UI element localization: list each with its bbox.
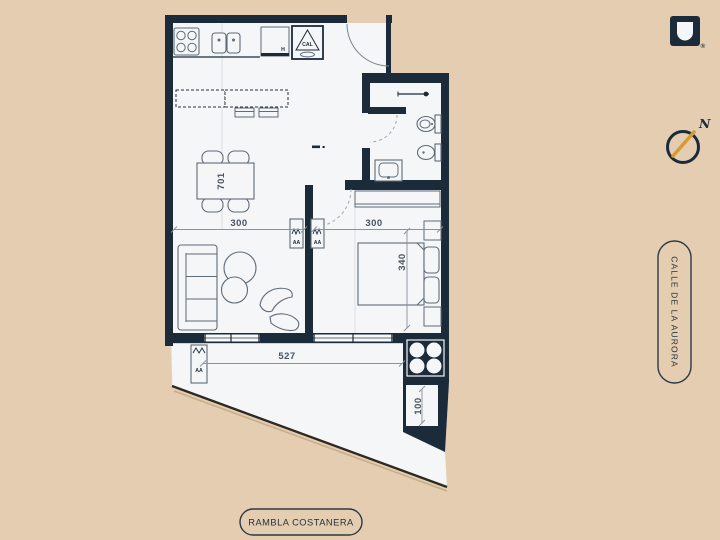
north-label: N bbox=[698, 116, 711, 131]
wall-laundry-top bbox=[362, 73, 449, 83]
living-window bbox=[204, 335, 260, 342]
terrace-depth-dimension: 100 bbox=[406, 385, 438, 426]
water-heater-icon: CAL bbox=[292, 26, 323, 59]
street-name-bottom: RAMBLA COSTANERA bbox=[248, 518, 354, 528]
ac-label: AA bbox=[293, 240, 301, 246]
toilet-icon bbox=[417, 115, 441, 133]
kitchen-island bbox=[225, 90, 288, 107]
oven-label: H bbox=[281, 47, 285, 53]
bidet-icon bbox=[418, 144, 442, 161]
wall-top bbox=[165, 15, 347, 23]
ac-label: AA bbox=[195, 368, 203, 374]
coffee-table-small bbox=[222, 277, 248, 303]
stove-icon bbox=[174, 28, 199, 55]
unit-number-label: 701 bbox=[216, 172, 227, 190]
dim-terrace-width: 527 bbox=[278, 351, 295, 362]
dim-living-width: 300 bbox=[230, 218, 247, 229]
street-name-right: CALLE DE LA AURORA bbox=[670, 256, 680, 367]
dim-bedroom-depth: 340 bbox=[397, 253, 408, 270]
floor-plan-canvas: 100 H CAL bbox=[0, 0, 720, 540]
kitchen-counter bbox=[176, 90, 225, 107]
ac-label: AA bbox=[314, 240, 322, 246]
sofa bbox=[178, 245, 217, 330]
wall-living-bedroom bbox=[305, 185, 313, 343]
ac-unit-bedroom: AA bbox=[311, 219, 324, 248]
ac-unit-terrace: AA bbox=[191, 345, 207, 383]
bedroom-window bbox=[313, 335, 393, 342]
kitchen-sink-icon bbox=[212, 33, 240, 53]
bathroom-sink-icon bbox=[375, 160, 402, 181]
wall-top-jamb bbox=[386, 15, 392, 23]
dim-terrace-depth: 100 bbox=[413, 397, 424, 414]
logo-mark-icon bbox=[677, 22, 693, 41]
heater-label: CAL bbox=[302, 42, 313, 48]
dim-bedroom-width: 300 bbox=[365, 218, 382, 229]
wall-laundry-bath bbox=[368, 107, 406, 114]
wall-left bbox=[165, 15, 173, 346]
ac-unit-living: AA bbox=[290, 219, 303, 248]
floor-plan-page: 100 H CAL bbox=[0, 0, 720, 540]
registered-mark: ® bbox=[701, 42, 706, 50]
